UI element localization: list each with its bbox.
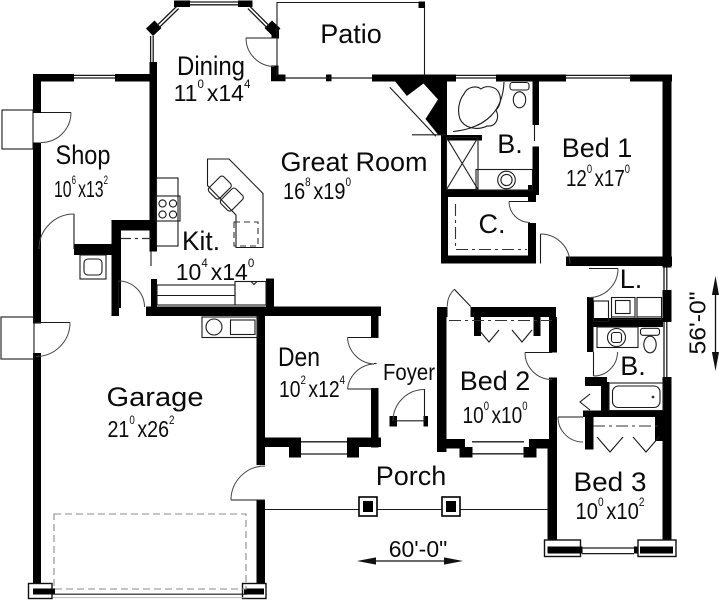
svg-text:104x140: 104x140 [176, 258, 255, 285]
svg-text:Great Room: Great Room [280, 147, 427, 177]
svg-text:Bed 3: Bed 3 [574, 467, 647, 497]
svg-text:210x262: 210x262 [108, 415, 175, 442]
svg-text:110x144: 110x144 [174, 79, 251, 106]
svg-text:168x190: 168x190 [283, 177, 351, 204]
svg-text:C.: C. [479, 209, 506, 239]
svg-text:100x100: 100x100 [463, 401, 528, 428]
svg-text:60'-0": 60'-0" [389, 536, 448, 562]
svg-text:Bed 1: Bed 1 [562, 133, 633, 163]
svg-text:Patio: Patio [320, 19, 382, 49]
svg-text:106x132: 106x132 [54, 175, 108, 202]
svg-text:Porch: Porch [376, 461, 447, 491]
svg-text:100x102: 100x102 [576, 497, 645, 524]
svg-text:Kit.: Kit. [182, 226, 220, 256]
svg-text:B.: B. [620, 351, 646, 381]
svg-text:Garage: Garage [107, 382, 204, 412]
svg-text:Bed 2: Bed 2 [460, 366, 531, 396]
svg-text:B.: B. [497, 129, 523, 159]
svg-text:Shop: Shop [56, 140, 111, 170]
svg-text:56'-0": 56'-0" [685, 292, 711, 355]
svg-text:Foyer: Foyer [383, 359, 435, 385]
svg-text:Dining: Dining [177, 51, 245, 81]
svg-text:120x170: 120x170 [566, 164, 630, 191]
svg-text:Den: Den [278, 342, 320, 372]
svg-text:L.: L. [620, 264, 643, 294]
svg-text:102x124: 102x124 [279, 375, 345, 402]
